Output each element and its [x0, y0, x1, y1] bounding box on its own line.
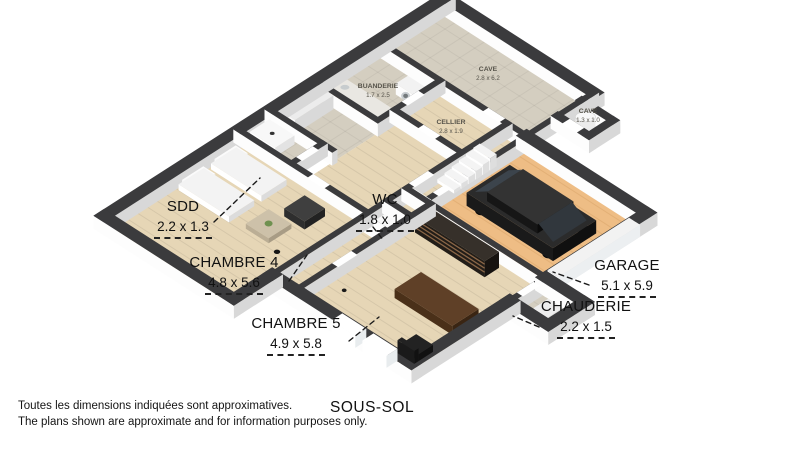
floor-title: SOUS-SOL [330, 399, 414, 417]
room-callout-chambre-5: CHAMBRE 5 4.9 x 5.8 [238, 314, 354, 356]
svg-text:2.8 x 6.2: 2.8 x 6.2 [476, 75, 500, 82]
room-name: CHAMBRE 4 [176, 253, 292, 272]
svg-text:2.8 x 1.9: 2.8 x 1.9 [439, 128, 463, 135]
floor-plan-page: CAVE2.8 x 6.2CAVE1.3 x 1.0BUANDERIE1.7 x… [0, 0, 800, 450]
room-dimensions: 2.2 x 1.3 [154, 217, 212, 239]
svg-text:BUANDERIE: BUANDERIE [358, 83, 399, 90]
room-name: WC [341, 190, 429, 209]
room-dimensions: 4.9 x 5.8 [267, 334, 325, 356]
svg-text:CAVE: CAVE [479, 66, 498, 73]
drain-dot [270, 132, 275, 135]
room-name: GARAGE [570, 256, 684, 275]
room-dimensions: 5.1 x 5.9 [598, 276, 656, 298]
room-name: CHAMBRE 5 [238, 314, 354, 333]
room-name: CHAUDERIE [524, 297, 648, 316]
svg-text:CAVE: CAVE [579, 108, 598, 115]
room-callout-garage: GARAGE 5.1 x 5.9 [570, 256, 684, 298]
room-callout-chauderie: CHAUDERIE 2.2 x 1.5 [524, 297, 648, 339]
disclaimer-line-fr: Toutes les dimensions indiquées sont app… [18, 400, 292, 412]
room-callout-sdd: SDD 2.2 x 1.3 [128, 197, 238, 239]
room-callout-chambre-4: CHAMBRE 4 4.8 x 5.6 [176, 253, 292, 295]
counter-sink [340, 85, 349, 90]
svg-text:CELLIER: CELLIER [436, 119, 465, 126]
disclaimer-line-en: The plans shown are approximate and for … [18, 416, 367, 428]
room-name: SDD [128, 197, 238, 216]
room-dimensions: 2.2 x 1.5 [557, 317, 615, 339]
ceiling-light-dot [342, 289, 347, 293]
svg-text:1.3 x 1.0: 1.3 x 1.0 [576, 117, 600, 124]
room-dimensions: 4.8 x 5.6 [205, 273, 263, 295]
room-callout-wc: WC 1.8 x 1.0 [341, 190, 429, 232]
plant [265, 221, 273, 227]
svg-text:1.7 x 2.5: 1.7 x 2.5 [366, 92, 390, 99]
room-dimensions: 1.8 x 1.0 [356, 210, 414, 232]
